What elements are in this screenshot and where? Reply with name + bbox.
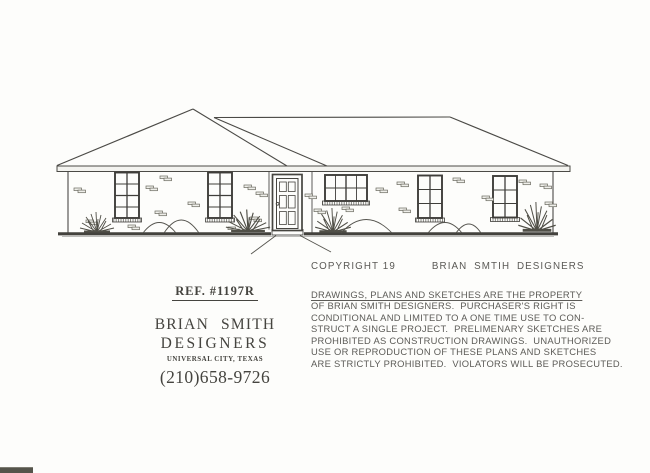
- company-phone: (210)658-9726: [140, 367, 290, 388]
- copyright-company: BRIAN SMTIH DESIGNERS: [432, 261, 585, 272]
- house-elevation-drawing: [0, 0, 650, 473]
- window-sill: [491, 218, 520, 222]
- window-2: [206, 173, 235, 223]
- copyright-label: COPYRIGHT 19: [311, 261, 396, 272]
- copyright-block: COPYRIGHT 19 BRIAN SMTIH DESIGNERS DRAWI…: [311, 261, 621, 369]
- ground-line: [58, 234, 558, 237]
- notice-line: CONDITIONAL AND LIMITED TO A ONE TIME US…: [311, 312, 621, 323]
- notice-line: DRAWINGS, PLANS AND SKETCHES ARE THE PRO…: [311, 289, 621, 300]
- company-name-line1: BRIAN SMITH: [140, 316, 290, 334]
- ref-number: REF. #1197R: [172, 284, 258, 301]
- blueprint-page: REF. #1197R BRIAN SMITH DESIGNERS UNIVER…: [0, 0, 650, 473]
- window-sill: [206, 218, 235, 222]
- brick-marks: [74, 176, 557, 232]
- notice-line: STRUCT A SINGLE PROJECT. PRELIMENARY SKE…: [311, 323, 621, 334]
- window-sill: [113, 218, 142, 222]
- window-1: [113, 173, 142, 223]
- exterior-walls: [68, 172, 553, 233]
- title-block: REF. #1197R BRIAN SMITH DESIGNERS UNIVER…: [140, 282, 290, 388]
- window-4: [416, 176, 445, 223]
- walkway: [251, 236, 331, 255]
- window-sill: [323, 201, 370, 205]
- hip-roof: [57, 109, 570, 172]
- scan-artifact: [0, 467, 33, 473]
- company-location: UNIVERSAL CITY, TEXAS: [140, 356, 290, 363]
- notice-line: PROHIBITED AS CONSTRUCTION DRAWINGS. UNA…: [311, 335, 621, 346]
- copyright-notice: DRAWINGS, PLANS AND SKETCHES ARE THE PRO…: [311, 289, 621, 369]
- front-door: [273, 175, 303, 231]
- notice-line: USE OR REPRODUCTION OF THESE PLANS AND S…: [311, 346, 621, 357]
- notice-line: OF BRIAN SMITH DESIGNERS. PURCHASER'S RI…: [311, 300, 621, 311]
- company-name-line2: DESIGNERS: [140, 335, 290, 353]
- bushes: [80, 202, 556, 232]
- window-sill: [416, 218, 445, 222]
- window-5: [491, 176, 520, 222]
- window-3-wide: [323, 175, 370, 205]
- notice-line: ARE STRICTLY PROHIBITED. VIOLATORS WILL …: [311, 358, 621, 369]
